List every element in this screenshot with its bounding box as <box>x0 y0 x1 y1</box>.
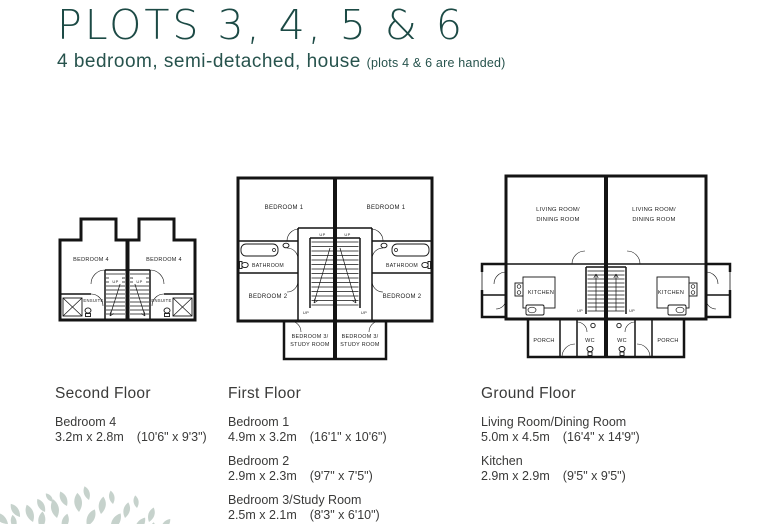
room-label-bedroom3-right-line2: STUDY ROOM <box>340 342 380 348</box>
stairs-up-label-left-top: UP <box>319 232 325 237</box>
imperial-dims: (10'6" x 9'3") <box>137 430 207 444</box>
second-floor-drawing: BEDROOM 4 BEDROOM 4 ENSUITE ENSUITE UP U… <box>55 212 200 330</box>
room-name: Bedroom 3/Study Room <box>228 493 418 508</box>
stairs-up-label-right-bottom: UP <box>361 310 367 315</box>
room-label-bathroom-left: BATHROOM <box>252 263 284 269</box>
header: PLOTS 3, 4, 5 & 6 4 bedroom, semi-detach… <box>57 2 506 73</box>
imperial-dims: (16'4" x 14'9") <box>563 430 640 444</box>
room-label-ensuite-right: ENSUITE <box>151 298 171 303</box>
stairs-up-label-right: UP <box>629 309 635 313</box>
room-label-bedroom4-left: BEDROOM 4 <box>73 257 109 263</box>
room-label-bedroom3-right-line1: BEDROOM 3/ <box>342 334 379 340</box>
stairs-up-label-right: UP <box>136 279 142 284</box>
subtitle-text: 4 bedroom, semi-detached, house <box>57 51 361 72</box>
room-dimensions: 2.5m x 2.1m(8'3" x 6'10") <box>228 508 418 523</box>
room-label-living-left-line1: LIVING ROOM/ <box>536 207 580 213</box>
stairs-up-label-right-top: UP <box>344 232 350 237</box>
room-label-wc-right: WC <box>617 338 627 344</box>
first-floor-drawing: BEDROOM 1 BEDROOM 1 BATHROOM BATHROOM BE… <box>228 166 453 364</box>
room-label-porch-left: PORCH <box>533 338 554 344</box>
leaves-icon <box>0 477 185 524</box>
room-label-bathroom-right: BATHROOM <box>386 263 418 269</box>
room-name: Living Room/Dining Room <box>481 415 681 430</box>
metric-dims: 2.5m x 2.1m <box>228 508 297 522</box>
room-label-kitchen-right: KITCHEN <box>658 290 684 296</box>
first-floor-plan: BEDROOM 1 BEDROOM 1 BATHROOM BATHROOM BE… <box>228 166 453 364</box>
metric-dims: 2.9m x 2.3m <box>228 469 297 483</box>
room-dimensions: 4.9m x 3.2m(16'1" x 10'6") <box>228 430 418 445</box>
room-label-bedroom1-left: BEDROOM 1 <box>265 205 304 211</box>
page-title: PLOTS 3, 4, 5 & 6 <box>57 2 506 48</box>
legend-item: Bedroom 2 2.9m x 2.3m(9'7" x 7'5") <box>228 454 418 484</box>
leaf-decoration <box>0 477 185 524</box>
room-label-living-right-line1: LIVING ROOM/ <box>632 207 676 213</box>
stairs-up-label-left-bottom: UP <box>303 310 309 315</box>
metric-dims: 2.9m x 2.9m <box>481 469 550 483</box>
room-label-porch-right: PORCH <box>657 338 678 344</box>
room-dimensions: 2.9m x 2.9m(9'5" x 9'5") <box>481 469 681 484</box>
metric-dims: 3.2m x 2.8m <box>55 430 124 444</box>
legend-item: Bedroom 1 4.9m x 3.2m(16'1" x 10'6") <box>228 415 418 445</box>
room-label-bedroom3-left-line1: BEDROOM 3/ <box>292 334 329 340</box>
legend-second-floor: Second Floor Bedroom 4 3.2m x 2.8m(10'6"… <box>55 385 220 454</box>
metric-dims: 4.9m x 3.2m <box>228 430 297 444</box>
room-label-kitchen-left: KITCHEN <box>528 290 554 296</box>
room-label-bedroom2-right: BEDROOM 2 <box>383 294 422 300</box>
second-floor-plan: BEDROOM 4 BEDROOM 4 ENSUITE ENSUITE UP U… <box>55 212 200 330</box>
legend-item: Kitchen 2.9m x 2.9m(9'5" x 9'5") <box>481 454 681 484</box>
legend-ground-floor: Ground Floor Living Room/Dining Room 5.0… <box>481 385 681 493</box>
subtitle-note: (plots 4 & 6 are handed) <box>367 56 506 70</box>
room-label-wc-left: WC <box>585 338 595 344</box>
metric-dims: 5.0m x 4.5m <box>481 430 550 444</box>
room-label-bedroom1-right: BEDROOM 1 <box>367 205 406 211</box>
room-dimensions: 2.9m x 2.3m(9'7" x 7'5") <box>228 469 418 484</box>
room-dimensions: 5.0m x 4.5m(16'4" x 14'9") <box>481 430 681 445</box>
room-name: Bedroom 1 <box>228 415 418 430</box>
legend-heading: Ground Floor <box>481 385 681 403</box>
legend-item: Living Room/Dining Room 5.0m x 4.5m(16'4… <box>481 415 681 445</box>
room-name: Bedroom 4 <box>55 415 220 430</box>
room-label-living-left-line2: DINING ROOM <box>536 217 579 223</box>
room-name: Bedroom 2 <box>228 454 418 469</box>
legend-heading: Second Floor <box>55 385 220 403</box>
imperial-dims: (8'3" x 6'10") <box>310 508 380 522</box>
room-label-bedroom4-right: BEDROOM 4 <box>146 257 182 263</box>
ground-floor-plan: LIVING ROOM/ DINING ROOM LIVING ROOM/ DI… <box>480 164 732 364</box>
room-label-living-right-line2: DINING ROOM <box>632 217 675 223</box>
room-label-bedroom2-left: BEDROOM 2 <box>249 294 288 300</box>
legend-heading: First Floor <box>228 385 418 403</box>
imperial-dims: (16'1" x 10'6") <box>310 430 387 444</box>
legend-item: Bedroom 3/Study Room 2.5m x 2.1m(8'3" x … <box>228 493 418 523</box>
room-name: Kitchen <box>481 454 681 469</box>
room-dimensions: 3.2m x 2.8m(10'6" x 9'3") <box>55 430 220 445</box>
page-subtitle: 4 bedroom, semi-detached, house (plots 4… <box>57 51 506 73</box>
stairs-up-label-left: UP <box>112 279 118 284</box>
legend-first-floor: First Floor Bedroom 1 4.9m x 3.2m(16'1" … <box>228 385 418 524</box>
ground-floor-drawing: LIVING ROOM/ DINING ROOM LIVING ROOM/ DI… <box>480 164 732 364</box>
room-label-ensuite-left: ENSUITE <box>83 298 103 303</box>
brochure-page: PLOTS 3, 4, 5 & 6 4 bedroom, semi-detach… <box>0 0 765 524</box>
stairs-up-label-left: UP <box>577 309 583 313</box>
imperial-dims: (9'7" x 7'5") <box>310 469 373 483</box>
legend-item: Bedroom 4 3.2m x 2.8m(10'6" x 9'3") <box>55 415 220 445</box>
room-label-bedroom3-left-line2: STUDY ROOM <box>290 342 330 348</box>
imperial-dims: (9'5" x 9'5") <box>563 469 626 483</box>
